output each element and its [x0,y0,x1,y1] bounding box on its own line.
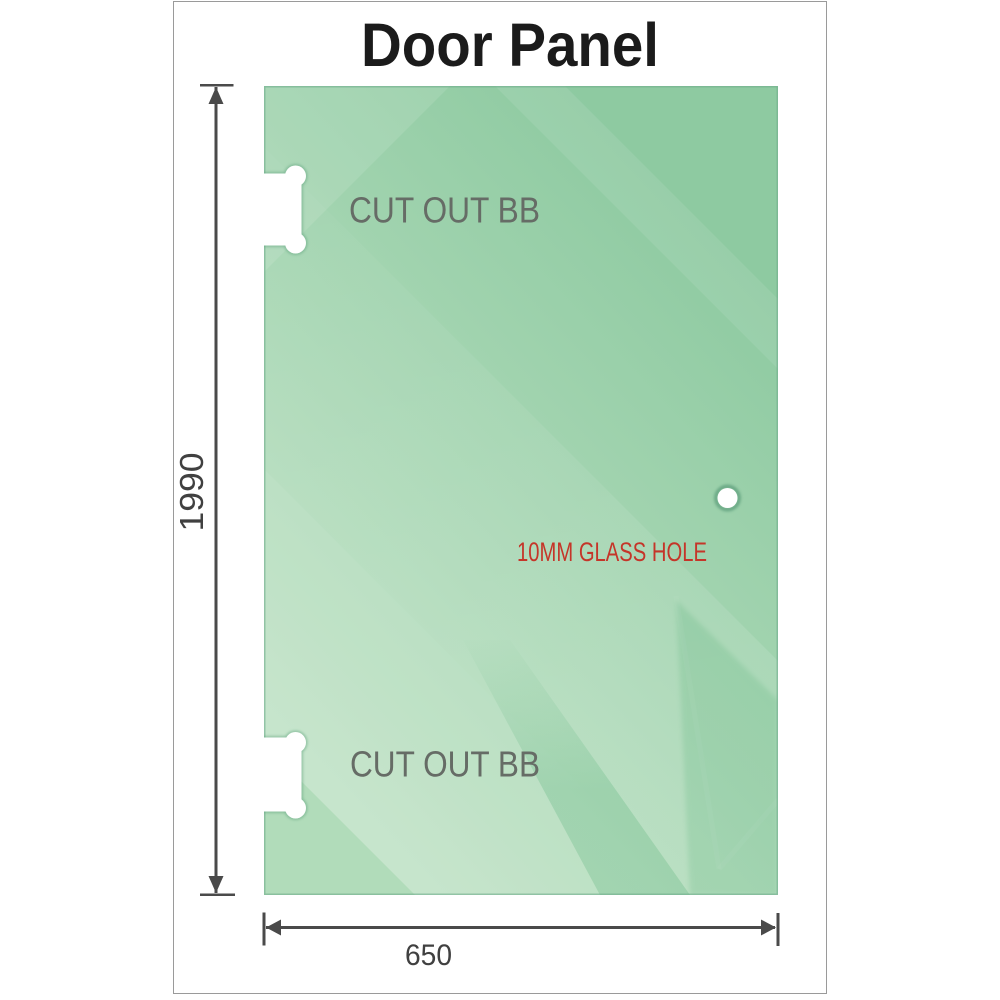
svg-text:Door Panel: Door Panel [361,11,659,80]
svg-text:650: 650 [405,939,452,972]
svg-text:10MM GLASS HOLE: 10MM GLASS HOLE [517,537,707,567]
svg-text:1990: 1990 [173,453,210,532]
svg-text:CUT OUT BB: CUT OUT BB [350,744,540,785]
svg-text:CUT OUT BB: CUT OUT BB [349,190,540,231]
